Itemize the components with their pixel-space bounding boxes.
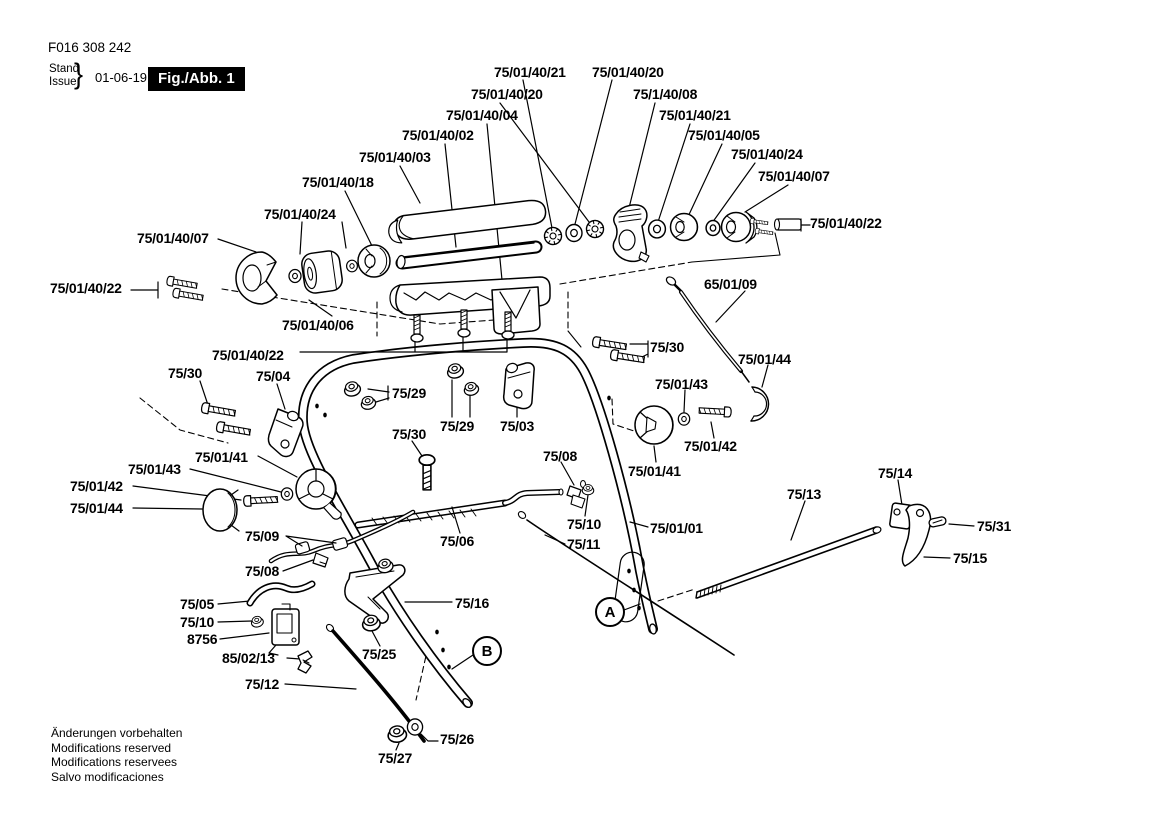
part-label: 75/09 [245,529,279,543]
part-label: 75/01/43 [655,377,708,391]
part-label: 75/01/40/24 [731,147,803,161]
screw-icon [201,402,236,418]
bolt-icon [699,406,732,418]
part-label: 75/01/41 [628,464,681,478]
part-label: 75/01/42 [70,479,123,493]
part-label: 75/1/40/08 [633,87,697,101]
screw-icon [172,288,204,303]
scre w-icon [755,228,774,236]
star-nut-icon [585,219,605,239]
part-label: 75/30 [168,366,202,380]
part-label: 75/06 [440,534,474,548]
washer-icon [706,221,720,236]
part-label: 75/01/40/07 [758,169,830,183]
part-8756-switch [269,604,299,655]
parts-diagram-page: F016 308 242 Stand Issue } 01-06-19 Fig.… [0,0,1168,825]
part-label: 85/02/13 [222,651,275,665]
washer-icon [407,719,422,735]
footer-line: Änderungen vorbehalten [51,726,182,741]
part-75-1-40-08-pawl [613,205,649,262]
document-number: F016 308 242 [48,40,131,55]
brace-glyph: } [74,58,83,91]
screw-icon [458,310,470,337]
part-label: 75/01/42 [684,439,737,453]
part-75-01-40-24-left-drum [300,250,343,295]
part-label: 75/01/40/04 [446,108,518,122]
part-75-01-41-right [635,406,673,444]
part-75-01-40-02-roller-bar [396,243,536,269]
part-75-08-clamp-right [567,481,586,509]
washer-icon [347,260,358,272]
nut-icon [343,380,362,398]
part-label: 75/14 [878,466,912,480]
part-label: 75/05 [180,597,214,611]
part-75-04-bracket [268,409,303,456]
part-75-13-link-rod [696,526,882,598]
view-marker-b: B [472,636,502,666]
part-75-01-44-right-clip [751,387,769,421]
figure-badge: Fig./Abb. 1 [148,67,245,91]
footer-line: Modifications reservees [51,755,182,770]
part-label: 75/01/01 [650,521,703,535]
part-label: 75/25 [362,647,396,661]
washer-icon [566,225,582,242]
part-label: 75/04 [256,369,290,383]
part-75-01-40-07-right-cap [722,212,757,243]
part-label: 75/30 [392,427,426,441]
part-label: 75/30 [650,340,684,354]
part-75-01-40-05-wheel [671,214,698,241]
diagram-art [0,0,1168,825]
part-75-01-44-left-cap [203,489,239,531]
part-75-01-41-left [296,469,341,519]
part-label: 75/27 [378,751,412,765]
part-label: 75/01/40/06 [282,318,354,332]
part-label: 75/03 [500,419,534,433]
footer-line: Modifications reserved [51,741,182,756]
part-label: 75/01/40/03 [359,150,431,164]
part-75-01-40-03-upper-shell [387,199,547,244]
part-75-01-40-18-wheel [358,245,390,277]
screw-icon [411,315,423,342]
nut-icon [463,381,480,397]
part-label: 75/01/40/21 [494,65,566,79]
part-label: 65/01/09 [704,277,757,291]
part-label: 75/13 [787,487,821,501]
part-label: 75/01/40/24 [264,207,336,221]
part-label: 75/08 [245,564,279,578]
part-label: 75/01/40/22 [50,281,122,295]
washer-icon [281,488,292,500]
issue-date: 01-06-19 [95,70,147,85]
footer-line: Salvo modificaciones [51,770,182,785]
washer-icon [649,220,666,238]
part-75-05-lever [250,584,312,603]
part-label: 75/01/43 [128,462,181,476]
part-label: 75/26 [440,732,474,746]
nut-icon [250,615,264,628]
part-label: 75/31 [977,519,1011,533]
screw-icon [610,349,645,365]
part-85-02-13-clip [298,651,312,673]
nut-icon [582,485,594,495]
part-label: 75/15 [953,551,987,565]
bolt-icon [243,494,278,506]
footer-notices: Änderungen vorbehalten Modifications res… [51,726,182,784]
nut-icon [446,362,465,380]
part-label: 75/01/40/20 [471,87,543,101]
part-label: 75/01/41 [195,450,248,464]
part-75-06-cross-rod [358,489,563,525]
part-label: 75/01/40/22 [810,216,882,230]
part-75-03-bracket [504,362,535,408]
axis-elbow-line2 [568,331,581,347]
part-label: 75/01/40/22 [212,348,284,362]
part-label: 75/01/40/18 [302,175,374,189]
part-label: 75/12 [245,677,279,691]
part-label: 75/01/40/07 [137,231,209,245]
nut-icon [387,725,407,744]
part-label: 75/10 [180,615,214,629]
star-nut-icon [543,226,563,246]
part-75-08-clamp-left [313,553,328,567]
part-label: 75/01/40/20 [592,65,664,79]
screw-icon [592,336,627,352]
part-label: 8756 [187,632,217,646]
part-label: 75/11 [567,537,600,551]
part-label: 75/16 [455,596,489,610]
part-label: 75/08 [543,449,577,463]
nut-icon [360,395,377,411]
screw-icon [419,455,435,490]
part-75-01-40-07-left-cap [236,252,277,304]
washer-icon [678,413,689,425]
part-label: 75/29 [440,419,474,433]
part-label: 75/01/44 [738,352,791,366]
part-label: 75/29 [392,386,426,400]
part-75-01-40-22-pin [775,219,802,230]
part-label: 75/01/44 [70,501,123,515]
screw-icon [166,276,198,291]
screw-icon [216,421,251,437]
view-marker-a: A [595,597,625,627]
part-label: 75/01/40/21 [659,108,731,122]
part-label: 75/01/40/05 [688,128,760,142]
washer-icon [289,270,301,283]
part-label: 75/01/40/02 [402,128,474,142]
part-label: 75/10 [567,517,601,531]
screw-icon [750,218,769,226]
